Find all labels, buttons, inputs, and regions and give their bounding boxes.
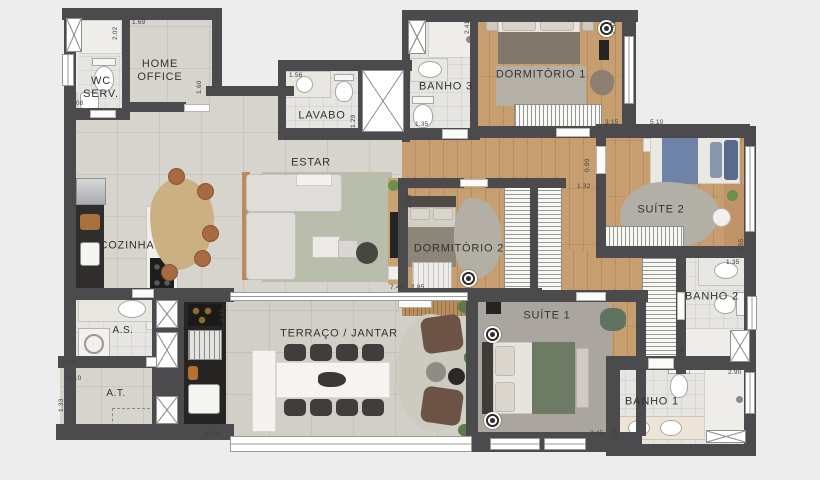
coffee-table [338, 240, 358, 258]
toilet-tank-icon [412, 96, 434, 104]
blanket [498, 32, 580, 64]
laundry-sink-icon [118, 300, 146, 318]
blanket [532, 342, 575, 414]
room-label-suite2: SUÍTE 2 [637, 203, 684, 216]
pillow [495, 346, 515, 376]
shaft-icon [156, 300, 178, 328]
wall [278, 64, 286, 134]
dimension-label: 2.02 [112, 27, 119, 40]
pouf [356, 242, 378, 264]
wall [470, 12, 478, 132]
wardrobe [514, 104, 602, 128]
door-panel [90, 110, 116, 118]
desk-chair [712, 208, 731, 227]
elevator-icon [362, 70, 404, 132]
chair [310, 399, 332, 416]
pillow [710, 142, 722, 178]
floor-plan: WC SERV. HOME OFFICE LAVABO BANHO 3 DORM… [0, 0, 820, 480]
dimension-label: 2.85 [411, 284, 424, 291]
wine-rack-icon [188, 304, 222, 326]
armchair [420, 313, 465, 354]
chair [284, 399, 306, 416]
room-label-cozinha: COZINHA [99, 239, 154, 252]
door-panel [596, 146, 606, 174]
fridge-icon [76, 178, 106, 205]
pillow [433, 208, 453, 220]
shaft-icon [156, 396, 178, 424]
chair [197, 183, 214, 200]
dimension-label: 7.43 [390, 284, 403, 291]
washer-door-icon [84, 334, 104, 354]
shower [704, 366, 746, 440]
pillow [410, 208, 430, 220]
dimension-label: 2.45 [590, 430, 603, 437]
wall [596, 124, 750, 138]
toilet-tank-icon [92, 58, 116, 66]
wall [402, 128, 480, 140]
room-label-dormitorio2: DORMITÓRIO 2 [414, 242, 504, 255]
sideboard [296, 174, 332, 186]
cutting-board-icon [80, 214, 100, 230]
room-label-banho2: BANHO 2 [685, 290, 739, 303]
window [624, 36, 634, 104]
door-panel [556, 128, 590, 137]
dimension-label: 2.50 [219, 309, 226, 322]
dimension-label: 5.10 [650, 119, 663, 126]
glass-railing [230, 436, 472, 452]
room-label-suite1: SUÍTE 1 [523, 309, 570, 322]
chair [362, 344, 384, 361]
headboard [406, 196, 456, 207]
pillow [495, 382, 515, 412]
room-label-terraco: TERRAÇO / JANTAR [280, 327, 398, 340]
dimension-label: 2.41 [610, 21, 617, 34]
grill-icon [188, 330, 222, 360]
shaft-icon [156, 332, 178, 368]
window [745, 372, 755, 414]
tv-icon [486, 302, 501, 314]
wall [466, 298, 478, 438]
dimension-label: 1.32 [577, 183, 590, 190]
wall [122, 14, 130, 114]
door-panel [576, 292, 606, 301]
door-panel [132, 289, 154, 298]
shower-head-icon [736, 396, 743, 403]
chair [310, 344, 332, 361]
sliding-glass-door [230, 292, 468, 301]
viewpoint-icon [484, 412, 501, 429]
toilet-tank-icon [334, 74, 354, 81]
shower-box-icon [730, 330, 750, 362]
room-label-wc-serv: WC SERV. [83, 75, 119, 101]
chair [202, 225, 219, 242]
door-panel [648, 358, 674, 369]
wall [126, 102, 186, 112]
chair [336, 344, 358, 361]
dimension-label: 1.60 [62, 359, 75, 366]
room-label-as: A.S. [113, 325, 134, 337]
shaft-icon [408, 20, 426, 54]
room-label-lavabo: LAVABO [298, 109, 345, 122]
buffet [252, 350, 276, 432]
pillow [724, 140, 738, 180]
plant-icon [727, 190, 738, 201]
door-panel [184, 104, 210, 112]
wall [636, 298, 646, 436]
sofa-chaise [246, 212, 296, 280]
chair [194, 250, 211, 267]
window [747, 296, 757, 330]
dimension-label: 3.15 [605, 119, 618, 126]
dimension-label: 2.10 [68, 375, 81, 382]
pouf [426, 362, 446, 382]
dimension-label: 2.55 [738, 239, 745, 252]
viewpoint-icon [460, 270, 477, 287]
chair [336, 399, 358, 416]
room-label-banho3: BANHO 3 [419, 80, 473, 93]
bench [576, 348, 589, 408]
dimension-label: 2.30 [679, 347, 686, 360]
dimension-label: 1.08 [70, 100, 83, 107]
shower-drain-icon [706, 430, 746, 443]
wardrobe [536, 184, 562, 296]
blanket [662, 136, 698, 184]
closet-wardrobe [642, 258, 680, 360]
room-label-at: A.T. [106, 388, 125, 400]
chair [362, 399, 384, 416]
kitchen-sink-icon [80, 242, 100, 266]
room-label-banho1: BANHO 1 [625, 395, 679, 408]
room-label-home-office: HOME OFFICE [137, 58, 182, 84]
dimension-label: 1.69 [132, 19, 145, 26]
window [745, 146, 755, 232]
chair [161, 264, 178, 281]
dimension-label: 1.33 [58, 399, 65, 412]
centerpiece [318, 372, 346, 387]
dimension-label: 6.35 [206, 430, 219, 437]
dimension-label: 1.56 [289, 72, 302, 79]
toilet-icon [670, 374, 688, 398]
basin-icon [660, 420, 682, 436]
shaft-icon [66, 18, 82, 52]
wall [486, 178, 566, 188]
window [62, 54, 74, 86]
toilet-icon [335, 81, 353, 102]
armchair [420, 385, 465, 426]
dimension-label: 1.60 [196, 81, 203, 94]
wardrobe [504, 184, 532, 296]
dimension-label: 1.35 [726, 259, 739, 266]
basin-icon [418, 61, 442, 78]
door-panel [460, 179, 488, 187]
tv-icon [599, 40, 609, 60]
dimension-label: 2.41 [464, 21, 471, 34]
dimension-label: 1.35 [415, 121, 428, 128]
coffee-table [312, 236, 340, 258]
window [490, 438, 540, 450]
dimension-label: 2.90 [728, 369, 741, 376]
pouf [600, 308, 626, 331]
chair [284, 344, 306, 361]
wall [530, 184, 538, 296]
door-panel [442, 129, 468, 139]
dimension-label: 1.98 [612, 427, 619, 440]
wall [596, 246, 752, 258]
headboard [482, 342, 493, 414]
sink-icon [188, 384, 220, 414]
dimension-label: 1.29 [350, 115, 357, 128]
wall [212, 8, 222, 96]
room-label-dormitorio1: DORMITÓRIO 1 [496, 68, 586, 81]
side-table [448, 368, 465, 385]
dimension-label: 0.90 [584, 159, 591, 172]
viewpoint-icon [484, 326, 501, 343]
door-panel [677, 292, 685, 320]
bottle-icon [188, 366, 198, 380]
wall [398, 178, 464, 188]
room-label-estar: ESTAR [291, 156, 331, 169]
window [544, 438, 586, 450]
chair [168, 168, 185, 185]
dimension-label: 2.48 [406, 195, 413, 208]
